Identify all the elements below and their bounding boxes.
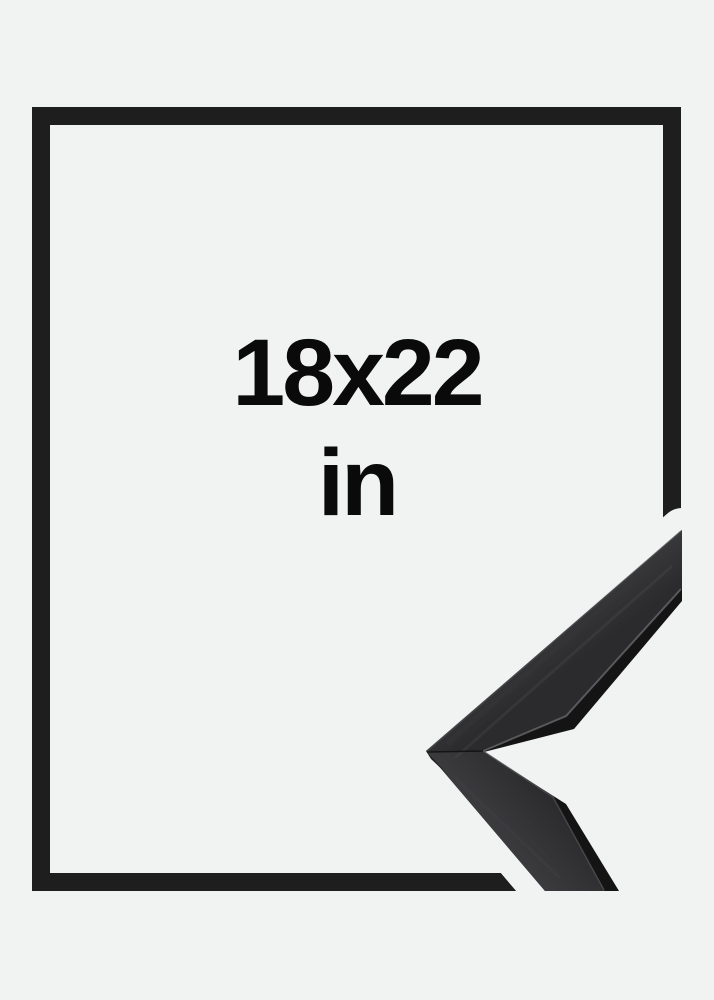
frame-size-label: 18x22 [0, 318, 714, 428]
product-image: 18x22 in [0, 0, 714, 1000]
frame-outline-bottom [32, 873, 560, 891]
mitre-seam [427, 751, 483, 752]
frame-corner-photo [426, 530, 682, 891]
frame-outline-top [32, 107, 681, 125]
size-label-block: 18x22 in [0, 318, 714, 538]
frame-unit-label: in [0, 428, 714, 538]
